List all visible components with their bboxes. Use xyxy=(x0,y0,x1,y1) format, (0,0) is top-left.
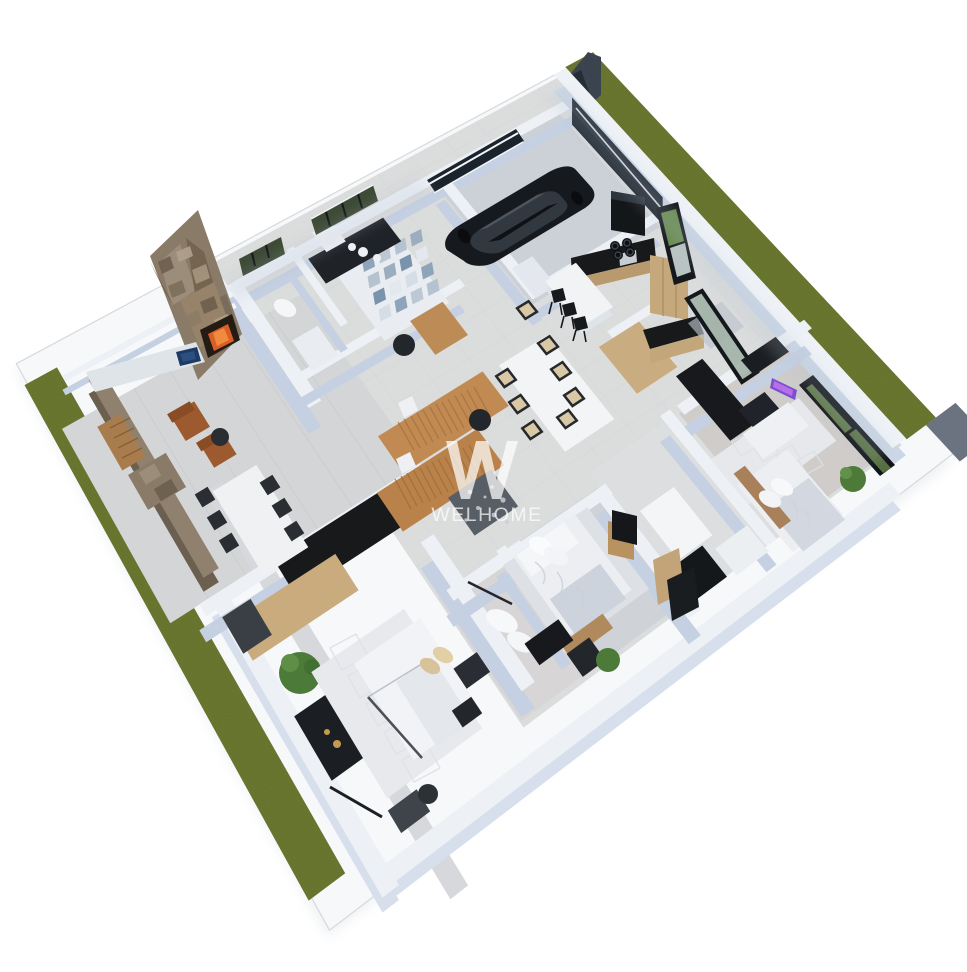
svg-text:WELHOME: WELHOME xyxy=(431,504,542,526)
